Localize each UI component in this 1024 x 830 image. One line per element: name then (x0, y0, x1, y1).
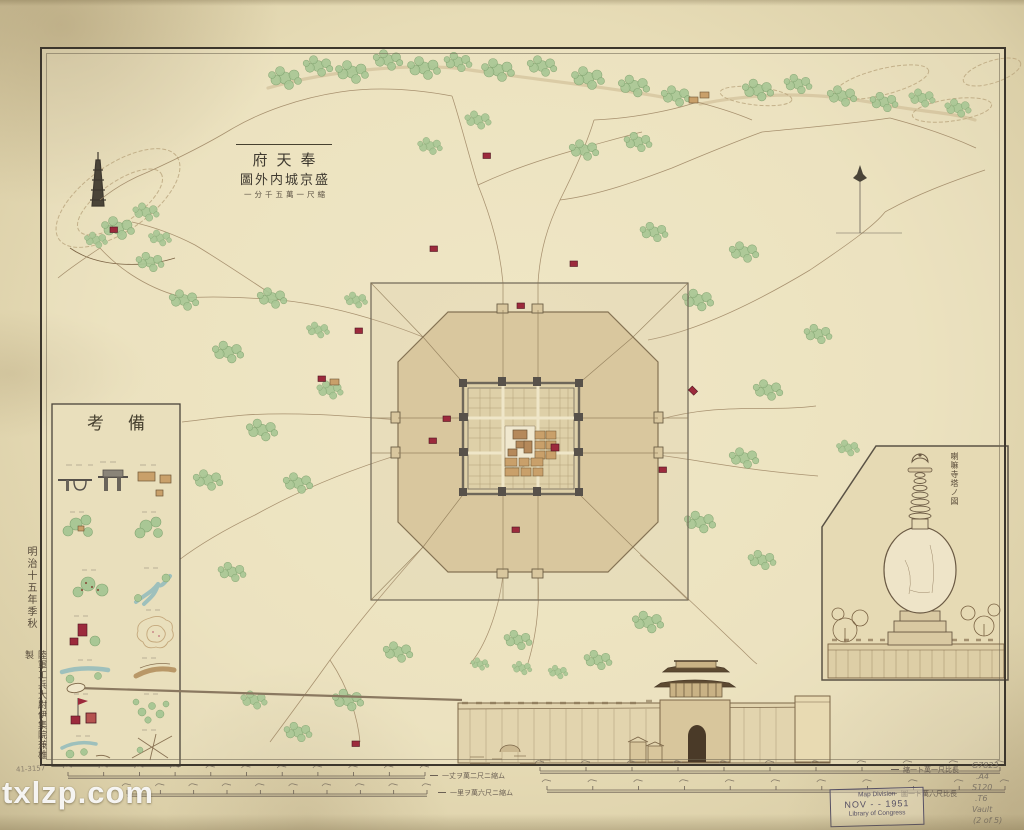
map-title-main: 圖外内城京盛 (224, 169, 344, 188)
west-pagoda-hill (40, 130, 196, 267)
pagoda-inset-caption: 喇嘛寺塔ノ図 (949, 452, 960, 536)
library-of-congress-stamp: Map Division NOV - - 1951 Library of Con… (830, 787, 925, 827)
legend-header: 考備 (52, 409, 180, 434)
call-number-line: G7823 (972, 760, 1024, 771)
gate-arch (688, 725, 706, 762)
map-title-prefecture: 府天奉 (230, 149, 338, 170)
inset-wall (828, 640, 1004, 678)
pagoda-inset (822, 446, 1008, 680)
call-number-line: S120 (972, 782, 1024, 793)
call-number-line: .T6 (975, 793, 1024, 804)
scale-bar-label-3: 一里ヲ萬六尺ニ縮ム (438, 788, 513, 798)
gate-illustration (66, 661, 830, 764)
scale-bar-label-2: 縮一ト萬一尺比長 (891, 765, 959, 775)
north-arrow (836, 165, 902, 233)
site-watermark: txlzp.com (2, 775, 154, 811)
stamp-institution-line: Library of Congress (831, 809, 923, 818)
call-number-line: .A4 (976, 771, 1024, 782)
title-rule (236, 144, 332, 145)
scanned-historical-map-page: { "page": {"description": "Aged hand-dra… (0, 0, 1024, 830)
call-number-line: (2 of 5) (973, 815, 1024, 826)
scale-bar-label-1: 一丈ヲ萬二尺ニ縮ム (430, 771, 505, 781)
red-temple-block (551, 444, 559, 451)
central-city (371, 283, 688, 600)
surveyor-credit-note: 陸軍工兵大尉伊集院兼雄製 (23, 650, 49, 768)
handwritten-accession-number: 41-3157 (16, 764, 46, 774)
survey-date-note: 明治十五年季秋 (23, 546, 38, 650)
call-number-line: Vault (972, 804, 1024, 815)
gate-tower (655, 661, 735, 762)
pencil-call-numbers: G7823 .A4 S120 .T6 Vault (2 of 5) (972, 760, 1024, 826)
map-scale-note: 一分千五萬一尺縮 (238, 189, 334, 200)
pagoda-tower-sketch (90, 152, 106, 206)
legend-panel (52, 404, 180, 766)
corner-bastion (795, 696, 830, 762)
